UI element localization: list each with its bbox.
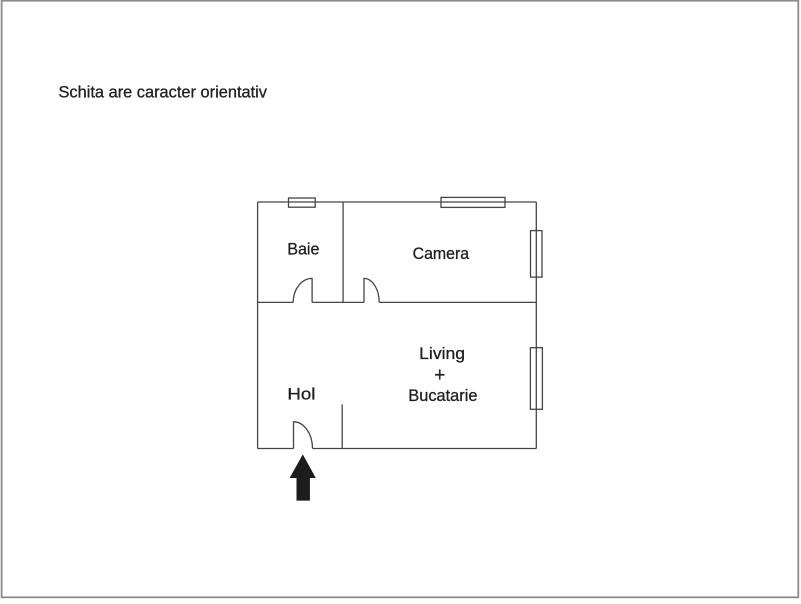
- svg-text:Camera: Camera: [413, 244, 470, 263]
- svg-text:Hol: Hol: [287, 385, 315, 404]
- svg-text:Bucatarie: Bucatarie: [408, 386, 477, 405]
- svg-text:Schita are caracter orientativ: Schita are caracter orientativ: [59, 84, 268, 102]
- svg-text:Baie: Baie: [287, 239, 319, 258]
- svg-text:Living: Living: [419, 344, 465, 363]
- svg-text:+: +: [434, 365, 445, 387]
